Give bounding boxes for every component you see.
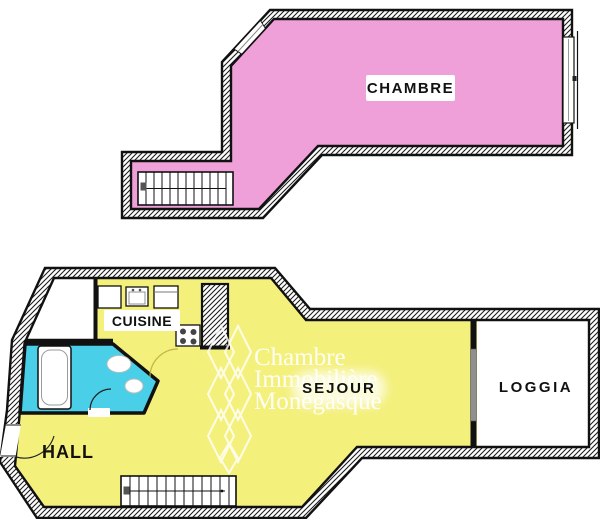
kitchen-sink	[126, 287, 148, 306]
bathtub	[38, 346, 71, 409]
cuisine-label: CUISINE	[104, 310, 180, 331]
chambre-window	[563, 31, 578, 129]
hall-label: HALL	[39, 440, 97, 464]
washbasin	[107, 356, 131, 373]
sejour-label: SEJOUR	[299, 378, 379, 399]
loggia-window-wall	[471, 320, 477, 447]
bathroom-door-gap	[88, 408, 110, 417]
toilet	[125, 379, 143, 393]
upper-floor-plan	[122, 10, 578, 218]
lower-staircase	[121, 476, 236, 506]
refrigerator	[98, 286, 121, 308]
chambre-label: CHAMBRE	[366, 75, 455, 101]
upper-staircase	[138, 172, 233, 205]
kitchen-appliance	[154, 286, 178, 308]
floor-plan-canvas: Chambre Immobilière Monégasque CHAMBRE C…	[0, 0, 600, 519]
loggia-label: LOGGIA	[501, 377, 571, 397]
